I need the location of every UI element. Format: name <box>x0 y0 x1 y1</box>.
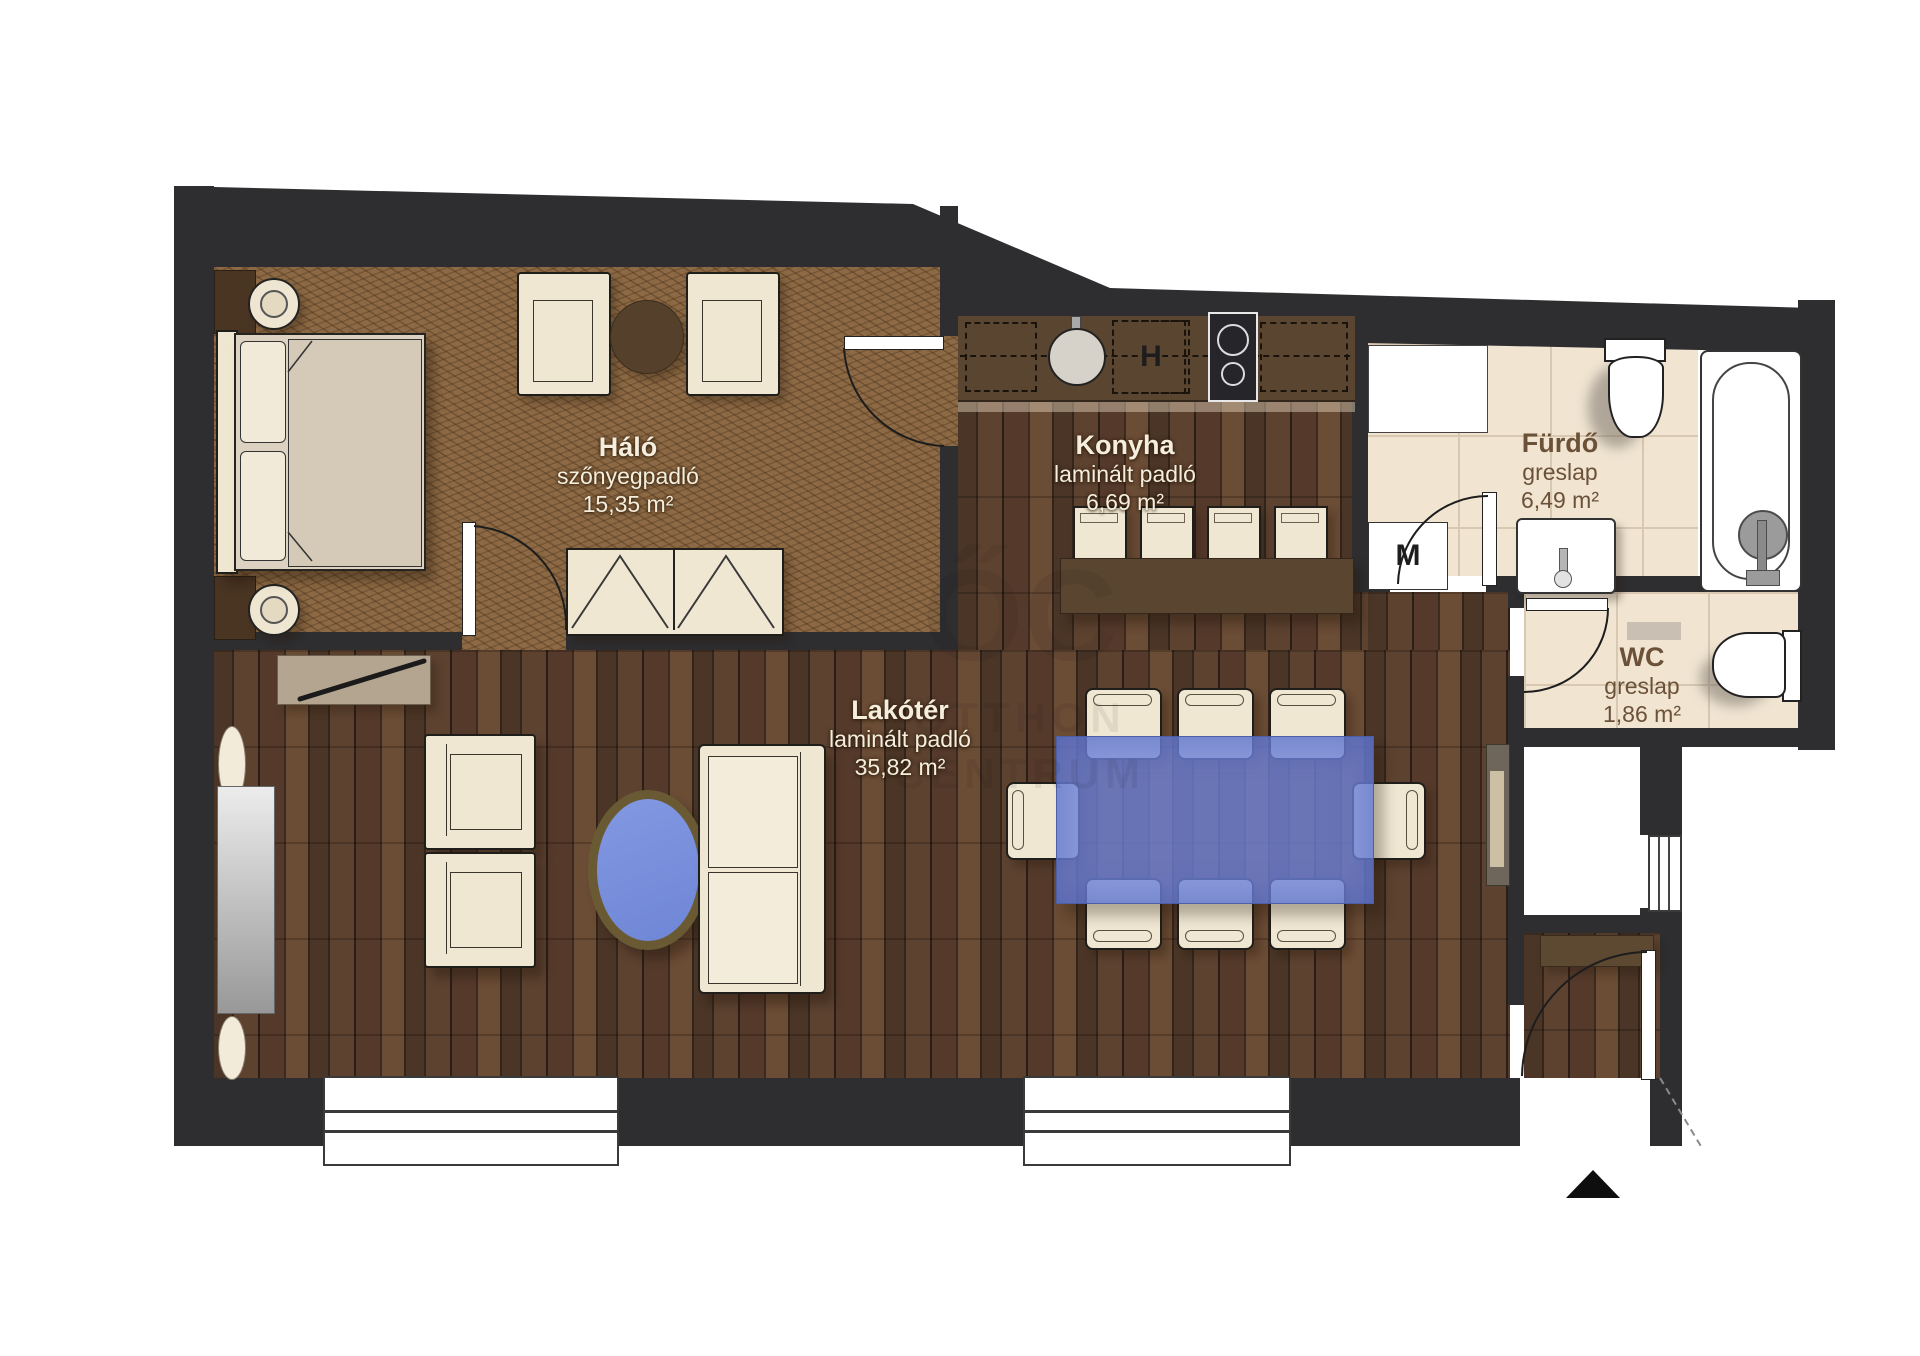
right-cabinet <box>1486 744 1510 886</box>
living-armchair-2 <box>424 852 536 968</box>
kitchen-bar <box>1060 558 1354 614</box>
bedroom-right-wall-a <box>940 206 958 336</box>
bottom-wall-b <box>615 1078 1023 1146</box>
bottom-wall-d <box>1650 1078 1682 1146</box>
entry-door-leaf <box>1641 950 1656 1080</box>
living-right-wall <box>1508 742 1524 1005</box>
wardrobe <box>566 548 784 636</box>
wc-door-leaf <box>1526 598 1608 611</box>
void-area <box>1524 742 1640 915</box>
lamp-bottom <box>248 584 300 636</box>
entrance-arrow-icon <box>1566 1170 1620 1198</box>
coffee-table <box>588 790 708 950</box>
bedroom-round-table <box>610 300 684 374</box>
bed-pillow-top <box>240 341 286 443</box>
wc-toilet-bowl <box>1712 632 1786 698</box>
void-right-wall-a <box>1640 742 1682 835</box>
right-wall <box>1798 300 1835 750</box>
sideboard <box>277 655 431 705</box>
living-window-left <box>323 1076 619 1166</box>
bath-toilet-bowl <box>1608 356 1664 438</box>
entry-shelf <box>1540 935 1654 967</box>
bedroom-right-wall-b <box>940 446 958 650</box>
burner-large-icon <box>1217 324 1249 356</box>
bathroom-door-panel <box>1368 345 1488 433</box>
wc-left-wall-a <box>1508 592 1524 608</box>
living-window-right <box>1023 1076 1291 1166</box>
burner-small-icon <box>1221 362 1245 386</box>
tv-console <box>217 786 275 1014</box>
bedroom-armchair-1 <box>517 272 611 396</box>
bar-stool-3 <box>1207 506 1261 560</box>
kitchen-sink <box>1048 328 1106 386</box>
bottom-wall-c <box>1287 1078 1520 1146</box>
kitchen-door-leaf <box>844 336 944 350</box>
wc-niche <box>1627 622 1681 640</box>
bed-blanket <box>288 339 422 567</box>
lamp-top <box>248 278 300 330</box>
void-window <box>1648 835 1682 912</box>
stove <box>1208 312 1258 402</box>
bedroom-door-leaf <box>462 522 476 636</box>
dining-table <box>1056 736 1374 904</box>
sofa <box>698 744 826 994</box>
fridge-label: H <box>1140 340 1162 374</box>
bathtub <box>1700 350 1802 592</box>
floor-plan: H M <box>0 0 1920 1356</box>
tub-fittings-icon <box>1746 570 1780 586</box>
washing-machine-label: M <box>1396 539 1421 573</box>
bottom-wall-a <box>174 1078 323 1146</box>
living-armchair-1 <box>424 734 536 850</box>
bar-stool-1 <box>1073 506 1127 560</box>
fridge-box: H <box>1112 320 1190 394</box>
bar-stool-4 <box>1274 506 1328 560</box>
bed-pillow-bottom <box>240 451 286 561</box>
hall-floor <box>1368 592 1510 652</box>
vestibule-door-leaf <box>1482 492 1497 586</box>
bar-stool-2 <box>1140 506 1194 560</box>
washing-machine: M <box>1368 522 1448 590</box>
left-wall <box>174 186 214 1146</box>
vanity-tap-knob-icon <box>1554 570 1572 588</box>
wall-oval-2 <box>218 1016 246 1080</box>
bedroom-armchair-2 <box>686 272 780 396</box>
